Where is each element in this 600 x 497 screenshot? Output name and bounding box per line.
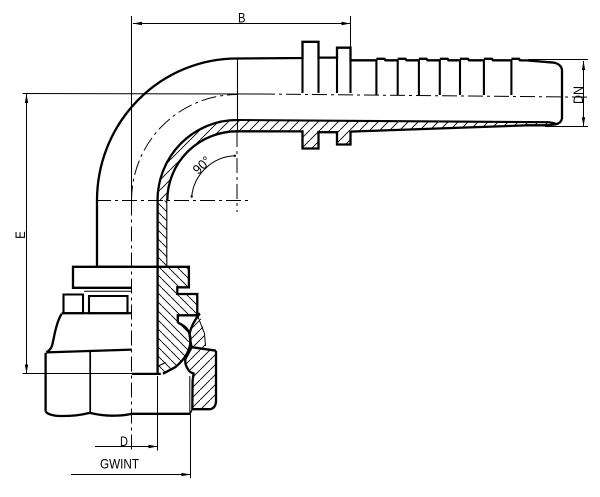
svg-text:E: E: [13, 231, 28, 239]
svg-text:D: D: [120, 434, 128, 449]
svg-text:B: B: [238, 10, 246, 25]
svg-text:DN: DN: [571, 86, 586, 104]
svg-text:GWINT: GWINT: [100, 456, 139, 472]
